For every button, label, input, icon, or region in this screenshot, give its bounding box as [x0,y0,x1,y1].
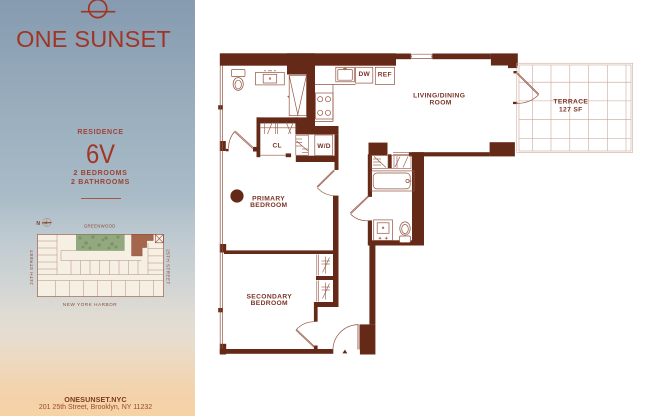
svg-text:CL: CL [273,143,282,150]
svg-text:BEDROOM: BEDROOM [250,202,287,209]
svg-text:127 SF: 127 SF [559,107,583,114]
svg-text:LIVING/DINING: LIVING/DINING [413,92,465,99]
svg-text:DW: DW [359,71,371,78]
svg-text:BEDROOM: BEDROOM [251,300,288,307]
svg-text:TERRACE: TERRACE [553,99,588,106]
svg-text:W/D: W/D [317,143,330,150]
svg-text:REF: REF [378,72,392,79]
svg-text:ROOM: ROOM [429,99,451,106]
